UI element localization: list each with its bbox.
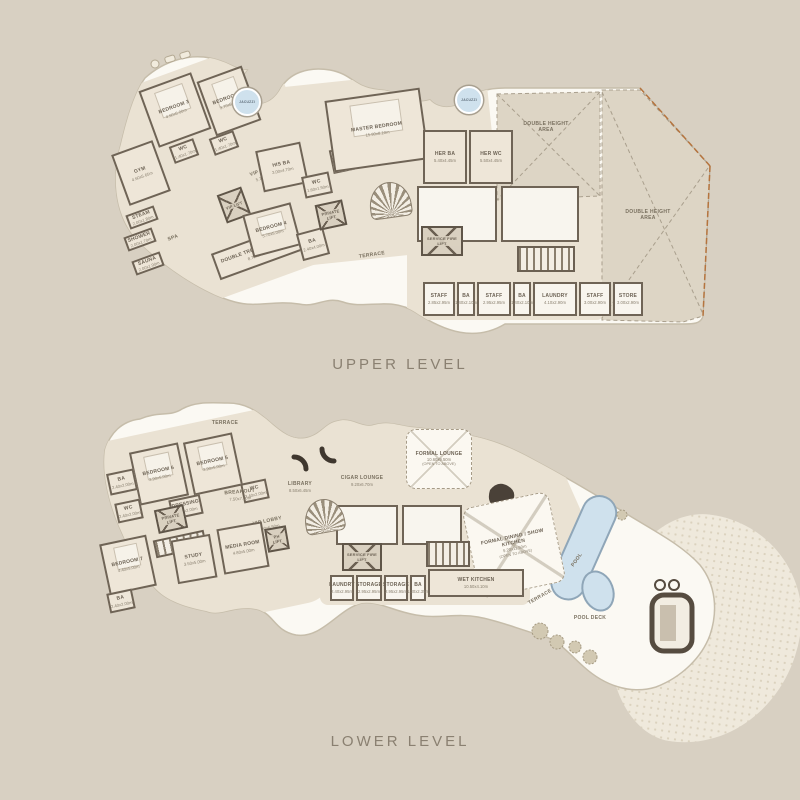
upper-level-caption: UPPER LEVEL [0,356,800,373]
room-ba-staff-2: BA1.40x2.10m [513,282,531,316]
room-her-ba: HER BA5.40x4.45m [423,130,467,184]
area-library: LIBRARY8.50x6.45m [274,477,326,497]
room-ba-staff-lower: BA1.30x2.35m [410,575,426,601]
room-service-fire-lift-lower: SERVICE FIRE LIFT [342,543,382,571]
area-double-height-right: DOUBLE HEIGHT AREA [620,206,676,224]
room-bedroom-7: BEDROOM 74.40x5.00m [99,535,157,596]
room-ph-lift: PH LIFT [264,525,290,552]
room-bedroom-6: BEDROOM 63.90x5.00m [129,442,189,505]
lower-rooms-layer: TERRACEBEDROOM 63.90x5.00mBEDROOM 53.90x… [70,395,735,730]
room-private-lift: PRIVATE LIFT [315,199,348,230]
area-terrace-top: TERRACE [200,417,250,429]
upper-rooms-layer: BEDROOM 34.60x5.00mBEDROOM 23.70x5.00mWC… [85,48,725,358]
area-breakout: BREAKOUT7.50x7.00m [211,483,269,508]
lower-level-caption: LOWER LEVEL [0,733,800,750]
room-storage-2: STORAGE2.95x2.95m [384,575,408,601]
room-store: STORE3.00x2.90m [613,282,643,316]
area-pool: POOL [564,545,589,575]
room-staff-3: STAFF3.00x2.90m [579,282,611,316]
room-master-bedroom: MASTER BEDROOM15.90x8.10m [324,88,429,173]
room-media: MEDIA ROOM4.80x5.00m [216,521,269,574]
area-spa: SPA [159,226,187,249]
stairs-spiral-lower [301,496,346,536]
floor-plan-sheet: BEDROOM 34.60x5.00mBEDROOM 23.70x5.00mWC… [0,0,800,800]
room-wc-bedroom6: WC2.40x2.00m [114,499,144,524]
area-pool-deck: POOL DECK [568,613,612,623]
room-his-ba: HIS BA3.00x4.70m [255,142,309,193]
room-ba-bedroom7: BA2.40x2.00m [106,589,136,614]
room-wc-master: WC1.60x1.50m [301,171,333,198]
room-ba-bedroom6: BA2.40x2.00m [106,468,138,495]
room-laundry-lower: LAUNDRY2.40x2.95m [330,575,354,601]
room-wc-bedroom2: WC1.40x1.70m [209,130,240,156]
jacuzzi-left: JACUZZI [233,88,261,116]
room-service-block-lower-2 [402,505,462,545]
area-terrace: TERRACE [336,243,407,267]
upper-level-plan: BEDROOM 34.60x5.00mBEDROOM 23.70x5.00mWC… [85,48,725,358]
stairs-service-lower [426,541,470,567]
room-sauna: SAUNA2.00x1.90m [131,251,164,275]
room-service-block-2 [501,186,579,242]
room-formal-lounge: FORMAL LOUNGE10.60x9.50m(OPEN TO ABOVE) [406,429,472,489]
room-her-wc: HER WC5.50x4.45m [469,130,513,184]
room-shower: SHOWER2.00x1.70m [123,227,156,251]
room-private-lift-lower: PRIVATE LIFT [154,504,188,534]
room-ba-bedroom4: BA2.40x4.00m [296,227,330,261]
room-steam: STEAM2.00x1.80m [125,205,158,229]
room-wet-kitchen: WET KITCHEN10.50x4.10m [428,569,524,597]
area-cigar-lounge: CIGAR LOUNGE9.20x6.70m [334,471,390,491]
room-ba-staff-1: BA1.40x2.10m [457,282,475,316]
room-gym: GYM4.60x5.65m [111,140,171,206]
stairs-service [517,246,575,272]
room-service-fire-lift: SERVICE FIRE LIFT [421,226,463,256]
area-double-height-top: DOUBLE HEIGHT AREA [515,118,577,136]
room-study: STUDY3.50x5.00m [170,534,217,584]
lower-level-plan: TERRACEBEDROOM 63.90x5.00mBEDROOM 53.90x… [70,395,735,730]
stairs-main-spiral [367,179,414,220]
room-storage-1: STORAGE2.95x2.95m [356,575,382,601]
room-staff-2: STAFF2.95x2.95m [477,282,511,316]
jacuzzi-right: JACUZZI [455,86,483,114]
room-laundry: LAUNDRY4.10x2.90m [533,282,577,316]
room-staff-1: STAFF2.85x2.95m [423,282,455,316]
